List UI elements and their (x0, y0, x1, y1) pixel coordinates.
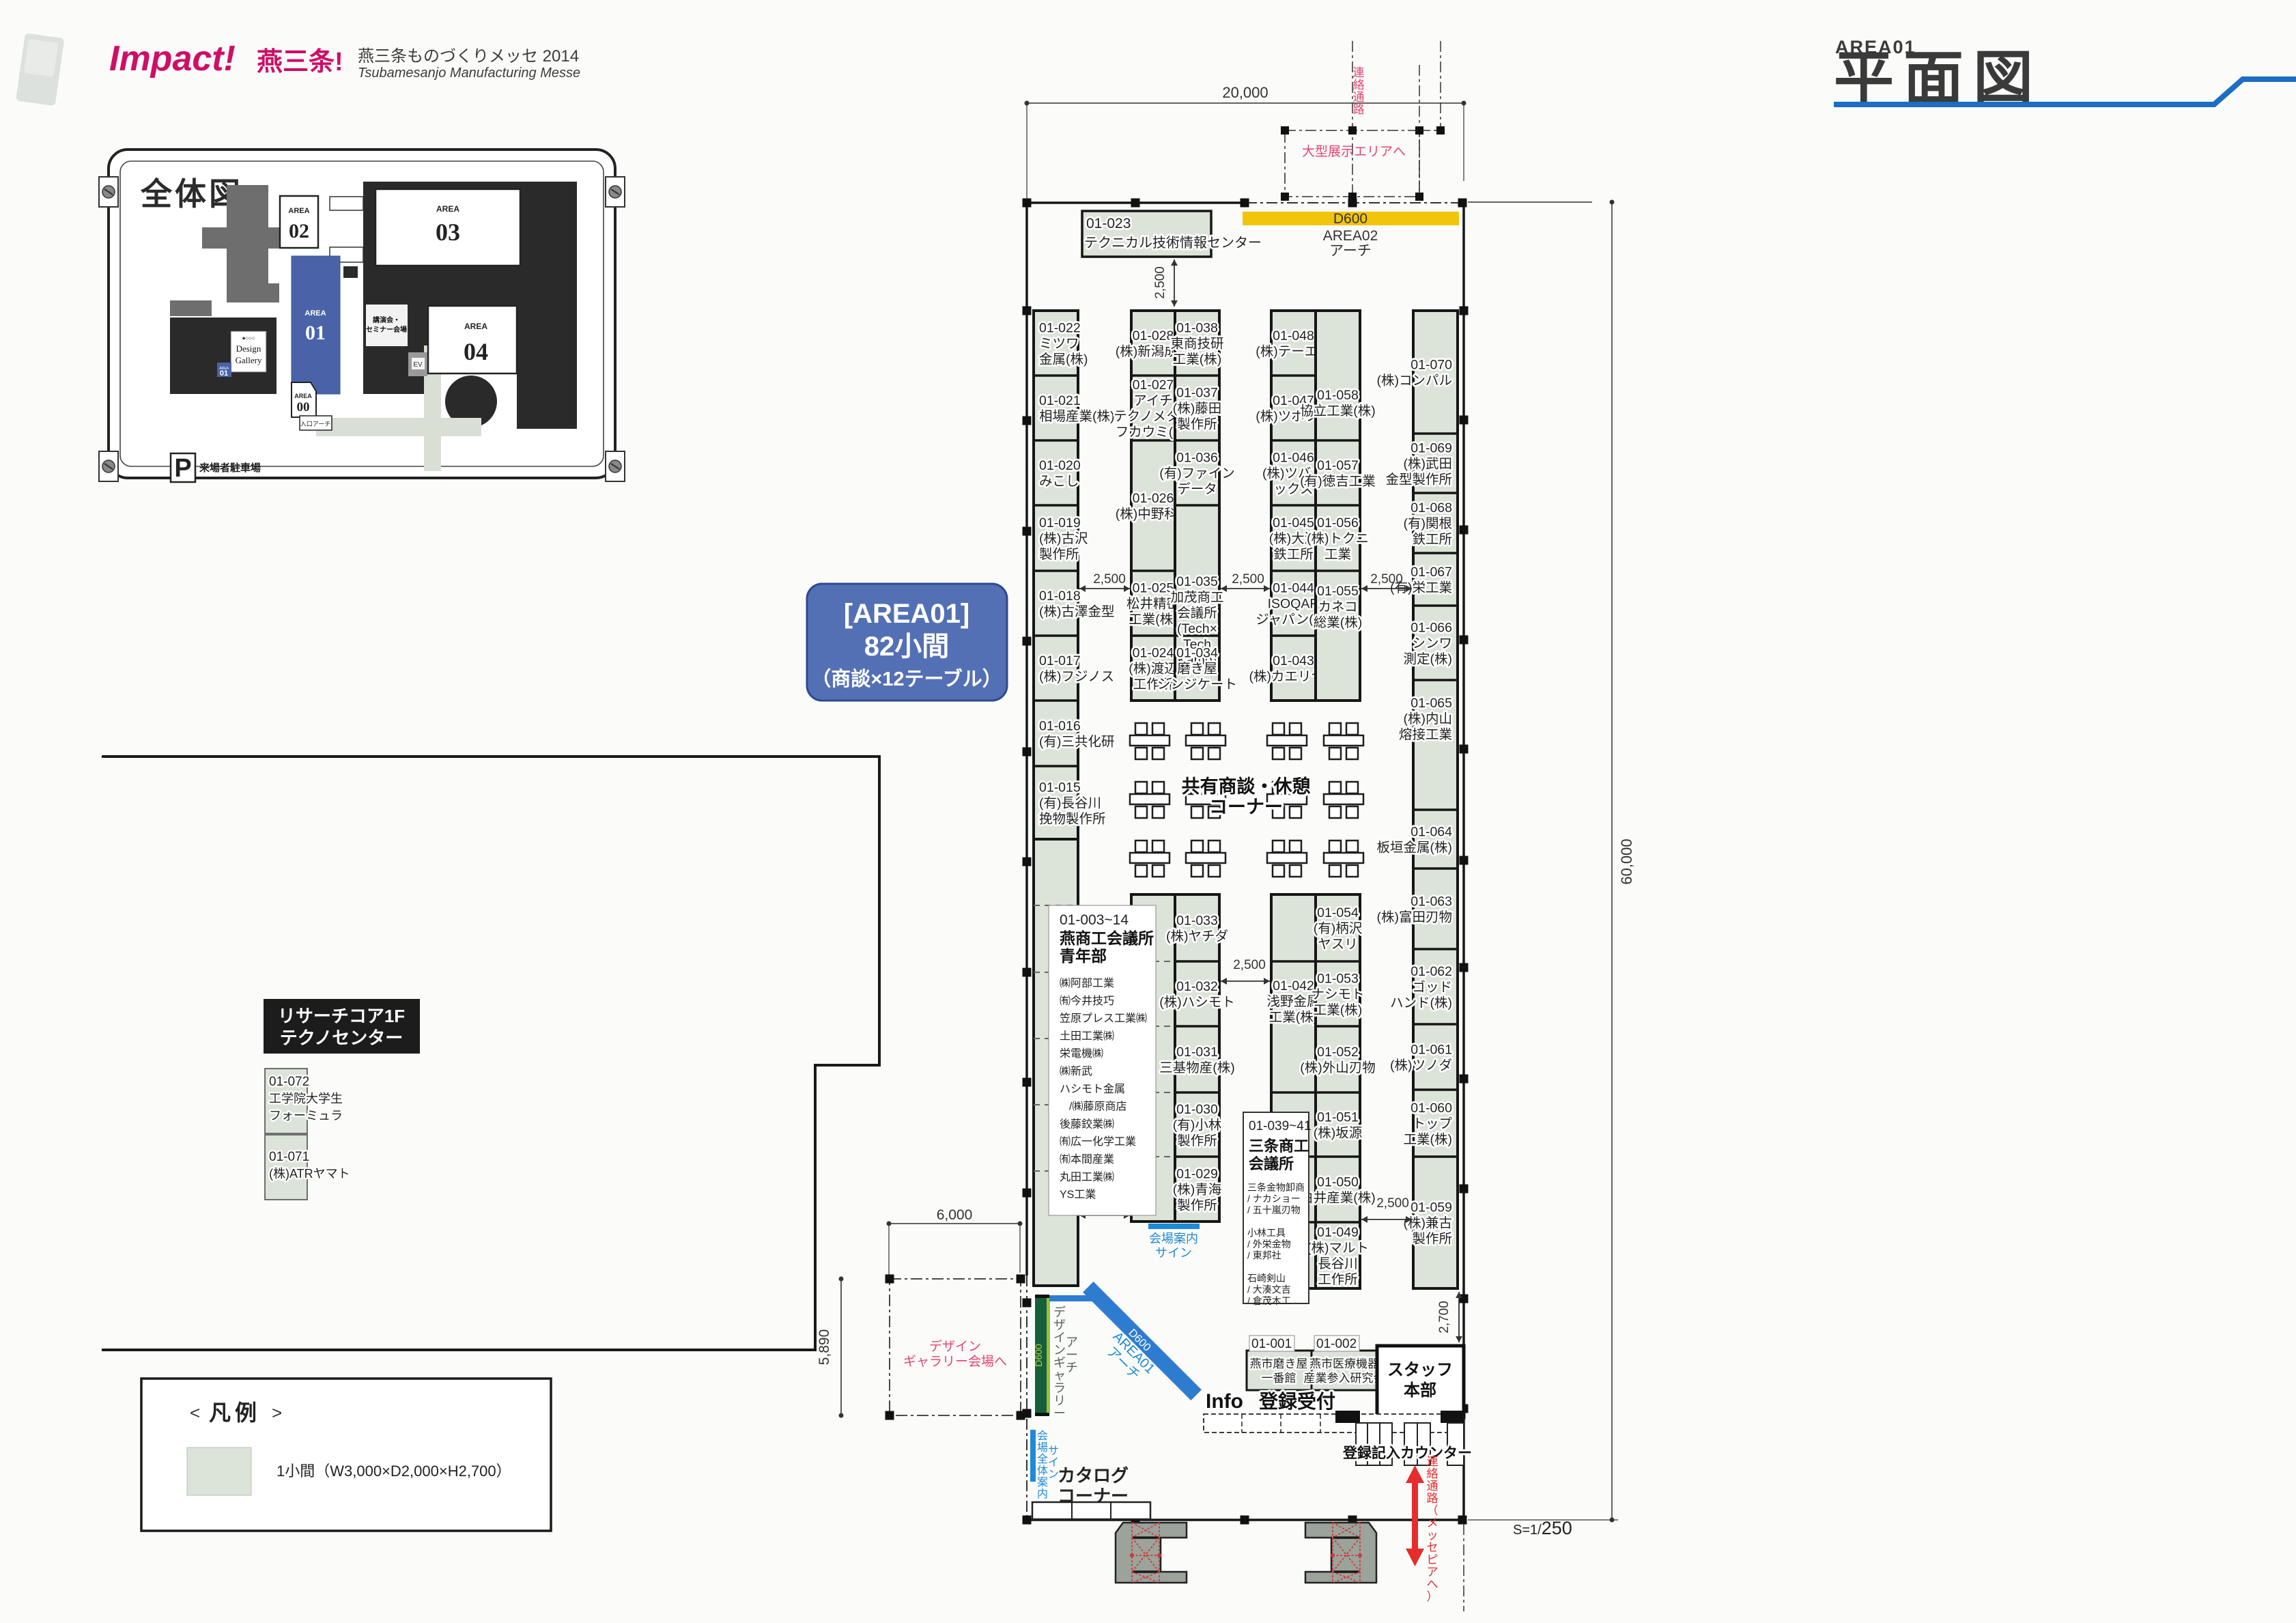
svg-text:㈱阿部工業: ㈱阿部工業 (1060, 977, 1114, 989)
svg-text:ヤスリ: ヤスリ (1318, 937, 1358, 952)
svg-text:ハシモト金属: ハシモト金属 (1060, 1083, 1125, 1095)
svg-text:04: 04 (464, 338, 488, 365)
svg-text:工業(株): 工業(株) (1404, 1132, 1453, 1147)
svg-text:01-044: 01-044 (1273, 581, 1314, 596)
svg-text:(株)ATRヤマト: (株)ATRヤマト (269, 1167, 350, 1181)
svg-text:後藤鉸業㈱: 後藤鉸業㈱ (1060, 1118, 1114, 1130)
svg-text:工学院大学生: 工学院大学生 (269, 1092, 343, 1105)
svg-text:(株)青海: (株)青海 (1173, 1183, 1222, 1198)
svg-text:フォーミュラ: フォーミュラ (269, 1109, 343, 1123)
svg-text:01-069: 01-069 (1411, 441, 1452, 456)
svg-text:㈲今井技巧: ㈲今井技巧 (1060, 995, 1114, 1007)
svg-text:01-034: 01-034 (1176, 646, 1218, 661)
svg-text:01-025: 01-025 (1133, 581, 1174, 596)
svg-text:01-024: 01-024 (1133, 646, 1174, 661)
svg-text:工業(株): 工業(株) (1269, 1010, 1318, 1025)
svg-text:01-045: 01-045 (1273, 516, 1314, 531)
svg-text:アイチ: アイチ (1133, 393, 1173, 408)
svg-text:/ ナカショー: / ナカショー (1247, 1194, 1301, 1204)
svg-text:2,500: 2,500 (1093, 572, 1126, 587)
svg-text:加茂商工: 加茂商工 (1170, 590, 1223, 605)
svg-text:白井産業(株): 白井産業(株) (1300, 1191, 1376, 1206)
svg-text:20,000: 20,000 (1222, 84, 1268, 101)
svg-text:2,500: 2,500 (1370, 572, 1403, 587)
svg-text:00: 00 (297, 400, 310, 414)
svg-text:01-056: 01-056 (1317, 516, 1359, 531)
svg-text:(株)古澤金型: (株)古澤金型 (1039, 604, 1115, 619)
svg-text:製作所: 製作所 (1177, 417, 1217, 432)
svg-text:01-053: 01-053 (1317, 972, 1359, 987)
svg-text:挽物製作所: 挽物製作所 (1039, 812, 1106, 827)
svg-text:総業(株): 総業(株) (1314, 615, 1363, 630)
svg-text:相場産業(株): 相場産業(株) (1039, 409, 1115, 424)
svg-text:01-020: 01-020 (1039, 458, 1081, 473)
svg-text:アーチ: アーチ (1066, 1336, 1078, 1374)
svg-text:石崎剣山: 石崎剣山 (1247, 1273, 1286, 1284)
svg-text:01-057: 01-057 (1317, 458, 1359, 473)
svg-text:スタッフ: スタッフ (1387, 1361, 1453, 1379)
svg-text:AREA: AREA (288, 207, 309, 215)
svg-text:サイン: サイン (1155, 1246, 1192, 1260)
svg-text:三条金物卸商: 三条金物卸商 (1247, 1182, 1305, 1193)
svg-text:01-049: 01-049 (1317, 1225, 1359, 1240)
svg-text:磨き屋: 磨き屋 (1177, 662, 1217, 677)
svg-text:(株)武田: (株)武田 (1404, 457, 1453, 472)
svg-text:燕市医療機器: 燕市医療機器 (1309, 1357, 1379, 1370)
svg-text:(有)小林: (有)小林 (1173, 1118, 1222, 1133)
svg-text:デザイン: デザイン (929, 1339, 981, 1354)
svg-text:共有商談・休憩: 共有商談・休憩 (1182, 776, 1311, 797)
svg-text:(Tech×: (Tech× (1177, 621, 1217, 636)
svg-text:AREA: AREA (464, 322, 487, 331)
svg-text:D600: D600 (1033, 1344, 1044, 1367)
svg-text:(株)ハシモト: (株)ハシモト (1159, 995, 1235, 1010)
svg-text:1小間（W3,000×D2,000×H2,700）: 1小間（W3,000×D2,000×H2,700） (277, 1463, 511, 1480)
svg-text:(株)藤田: (株)藤田 (1173, 401, 1222, 417)
svg-text:登録記入カウンター: 登録記入カウンター (1342, 1445, 1472, 1461)
svg-text:燕三条!: 燕三条! (257, 48, 343, 76)
svg-text:講演会・: 講演会・ (373, 315, 400, 324)
svg-text:60,000: 60,000 (1618, 838, 1635, 884)
svg-text:本部: 本部 (1404, 1381, 1436, 1400)
svg-text:(株)コンパル: (株)コンパル (1377, 373, 1453, 389)
svg-text:鉄工所: 鉄工所 (1273, 547, 1314, 562)
svg-text:01-052: 01-052 (1317, 1045, 1359, 1060)
svg-text:01-032: 01-032 (1176, 979, 1218, 994)
svg-text:01-031: 01-031 (1176, 1045, 1218, 1060)
svg-text:01-016: 01-016 (1039, 719, 1081, 734)
svg-text:ギャラリー会場へ: ギャラリー会場へ (903, 1354, 1007, 1369)
svg-text:/ 東邦社: / 東邦社 (1247, 1250, 1281, 1261)
svg-text:Tsubamesanjo Manufacturing Mes: Tsubamesanjo Manufacturing Messe (358, 66, 580, 81)
svg-text:(株)坂源: (株)坂源 (1314, 1126, 1363, 1141)
svg-text:丸田工業㈱: 丸田工業㈱ (1060, 1171, 1114, 1183)
svg-text:82小間: 82小間 (864, 632, 950, 662)
svg-text:ハンド(株): ハンド(株) (1390, 996, 1452, 1011)
svg-text:01-038: 01-038 (1176, 321, 1218, 336)
svg-text:鉄工所: 鉄工所 (1412, 532, 1452, 547)
svg-text:01-030: 01-030 (1176, 1102, 1218, 1117)
svg-text:01-068: 01-068 (1411, 500, 1452, 516)
svg-text:01-059: 01-059 (1411, 1200, 1452, 1215)
svg-text:入口アーチ: 入口アーチ (300, 421, 330, 427)
svg-text:◆◇◇◇: ◆◇◇◇ (242, 337, 255, 341)
svg-text:01-063: 01-063 (1411, 894, 1452, 909)
svg-text:Impact!: Impact! (109, 39, 236, 79)
svg-text:ナシモト: ナシモト (1311, 987, 1364, 1002)
svg-text:01-051: 01-051 (1317, 1110, 1359, 1125)
svg-text:㈲本間産業: ㈲本間産業 (1060, 1153, 1114, 1166)
svg-text:(株)渡辺: (株)渡辺 (1129, 662, 1178, 677)
svg-text:テクノセンター: テクノセンター (280, 1028, 403, 1048)
svg-text:会場全体案内: 会場全体案内 (1037, 1430, 1048, 1500)
svg-text:01-042: 01-042 (1273, 978, 1314, 993)
svg-text:燕三条ものづくりメッセ 2014: 燕三条ものづくりメッセ 2014 (358, 47, 579, 66)
svg-text:01-072: 01-072 (269, 1075, 309, 1089)
svg-text:AREA02: AREA02 (1323, 228, 1378, 244)
svg-text:01-026: 01-026 (1133, 491, 1174, 506)
svg-text:熔接工業: 熔接工業 (1399, 727, 1452, 742)
svg-text:01-028: 01-028 (1133, 328, 1174, 343)
svg-text:(有)長谷川: (有)長谷川 (1039, 796, 1101, 811)
svg-text:金属(株): 金属(株) (1039, 352, 1088, 367)
svg-text:登録受付: 登録受付 (1258, 1390, 1335, 1412)
svg-text:凡例: 凡例 (209, 1400, 261, 1425)
svg-text:Gallery: Gallery (236, 355, 262, 365)
svg-text:小林工具: 小林工具 (1247, 1227, 1286, 1238)
svg-text:01-017: 01-017 (1039, 653, 1081, 668)
svg-text:燕商工会議所: 燕商工会議所 (1060, 929, 1154, 947)
svg-text:金型製作所: 金型製作所 (1385, 472, 1452, 488)
svg-text:コーナー: コーナー (1209, 797, 1283, 817)
svg-text:(株)マルト: (株)マルト (1307, 1241, 1369, 1256)
svg-text:製作所: 製作所 (1039, 547, 1079, 562)
svg-text:カネコ: カネコ (1318, 599, 1357, 615)
svg-text:リサーチコア1F: リサーチコア1F (278, 1006, 405, 1026)
svg-text:(株)ヤチダ: (株)ヤチダ (1166, 929, 1228, 944)
svg-text:D600: D600 (1333, 211, 1367, 227)
svg-text:01-064: 01-064 (1411, 825, 1452, 840)
svg-text:01-046: 01-046 (1273, 451, 1314, 466)
svg-text:03: 03 (436, 218, 460, 246)
svg-text:01: 01 (305, 322, 326, 344)
svg-text:01-066: 01-066 (1411, 621, 1452, 636)
svg-text:セミナー会場: セミナー会場 (366, 325, 407, 334)
svg-text:(株)富田刃物: (株)富田刃物 (1377, 910, 1453, 925)
svg-text:01-003~14: 01-003~14 (1060, 912, 1129, 928)
svg-text:01-019: 01-019 (1039, 516, 1081, 531)
svg-text:トップ: トップ (1412, 1116, 1452, 1131)
svg-text:01-065: 01-065 (1411, 696, 1452, 711)
svg-text:工業(株): 工業(株) (1173, 352, 1222, 367)
svg-text:01-002: 01-002 (1316, 1337, 1357, 1351)
svg-text:01-023: 01-023 (1086, 216, 1131, 231)
svg-text:01-070: 01-070 (1411, 358, 1452, 373)
svg-text:[AREA01]: [AREA01] (844, 599, 969, 629)
svg-text:(株)トクニ: (株)トクニ (1307, 531, 1369, 546)
svg-text:工作所: 工作所 (1318, 1272, 1358, 1287)
svg-text:工業(株): 工業(株) (1129, 612, 1178, 627)
svg-text:01-001: 01-001 (1251, 1337, 1292, 1351)
svg-text:㈱新武: ㈱新武 (1060, 1065, 1092, 1077)
svg-text:Info: Info (1206, 1390, 1243, 1413)
svg-text:01-018: 01-018 (1039, 589, 1081, 604)
svg-text:連絡通路（メッセピアへ）: 連絡通路（メッセピアへ） (1427, 1455, 1438, 1603)
svg-text:01-029: 01-029 (1176, 1167, 1218, 1182)
svg-text:(有)三共化研: (有)三共化研 (1039, 735, 1115, 750)
svg-text:栄電機㈱: 栄電機㈱ (1060, 1047, 1103, 1060)
svg-text:みこし: みこし (1039, 474, 1079, 489)
svg-text:/ 外栄金物: / 外栄金物 (1247, 1239, 1291, 1250)
svg-text:アーチ: アーチ (1329, 243, 1372, 259)
svg-text:6,000: 6,000 (937, 1207, 973, 1223)
svg-text:01-054: 01-054 (1317, 905, 1359, 920)
svg-text:01-060: 01-060 (1411, 1101, 1452, 1116)
svg-text:01-061: 01-061 (1411, 1043, 1452, 1058)
svg-text:01-027: 01-027 (1133, 378, 1174, 393)
svg-text:ISOQAR: ISOQAR (1268, 597, 1320, 612)
svg-text:2,500: 2,500 (1232, 572, 1264, 587)
svg-text:<: < (190, 1402, 200, 1423)
svg-text:板垣金属(株): 板垣金属(株) (1377, 841, 1453, 856)
svg-text:/ 大湊文吉: / 大湊文吉 (1247, 1284, 1291, 1295)
svg-text:01-043: 01-043 (1273, 653, 1314, 668)
svg-text:01-022: 01-022 (1039, 321, 1081, 336)
svg-text:AREA: AREA (294, 393, 312, 399)
svg-text:デザインギャラリー: デザインギャラリー (1053, 1306, 1066, 1420)
svg-text:01-021: 01-021 (1039, 393, 1081, 408)
svg-text:(株)フジノス: (株)フジノス (1039, 669, 1114, 684)
svg-text:長谷川: 長谷川 (1318, 1256, 1358, 1271)
svg-text:工業(株): 工業(株) (1314, 1003, 1363, 1018)
svg-text:シンワ: シンワ (1412, 636, 1452, 651)
svg-text:製作所: 製作所 (1177, 1133, 1217, 1148)
svg-text:01-048: 01-048 (1273, 328, 1314, 343)
svg-text:2,500: 2,500 (1153, 266, 1167, 299)
svg-text:シンジケート: シンジケート (1157, 677, 1237, 692)
svg-text:02: 02 (289, 220, 309, 242)
svg-text:三条商工: 三条商工 (1249, 1138, 1309, 1155)
svg-text:01-015: 01-015 (1039, 780, 1081, 795)
svg-text:YS工業: YS工業 (1060, 1189, 1096, 1201)
svg-text:>: > (272, 1402, 282, 1423)
svg-text:01-035: 01-035 (1176, 574, 1218, 589)
svg-text:製作所: 製作所 (1412, 1232, 1452, 1247)
svg-text:カタログ: カタログ (1058, 1465, 1129, 1486)
svg-text:テクニカル技術情報センター: テクニカル技術情報センター (1084, 235, 1262, 251)
svg-text:会場案内: 会場案内 (1149, 1232, 1198, 1245)
svg-text:2,500: 2,500 (1233, 958, 1266, 972)
svg-text:(有)ファイン: (有)ファイン (1159, 466, 1235, 481)
svg-text:ゴッド: ゴッド (1412, 980, 1452, 995)
svg-text:AREA: AREA (304, 309, 326, 317)
svg-text:Design: Design (236, 343, 261, 354)
svg-text:5,890: 5,890 (817, 1329, 832, 1366)
svg-text:(有)徳吉工業: (有)徳吉工業 (1300, 474, 1376, 489)
svg-text:土田工業㈱: 土田工業㈱ (1060, 1030, 1114, 1042)
svg-text:工業: 工業 (1324, 547, 1351, 562)
svg-text:(株)外山刃物: (株)外山刃物 (1300, 1060, 1376, 1075)
svg-text:測定(株): 測定(株) (1404, 652, 1453, 667)
svg-text:三基物産(株): 三基物産(株) (1159, 1060, 1235, 1075)
svg-text:01-033: 01-033 (1176, 914, 1218, 929)
svg-text:ミツワ: ミツワ (1039, 337, 1079, 352)
svg-text:笠原プレス工業㈱: 笠原プレス工業㈱ (1060, 1013, 1147, 1025)
svg-text:来場者駐車場: 来場者駐車場 (199, 462, 261, 474)
svg-text:P: P (174, 454, 191, 483)
svg-text:01-036: 01-036 (1176, 451, 1218, 466)
svg-text:協立工業(株): 協立工業(株) (1300, 404, 1376, 419)
svg-text:2,500: 2,500 (1376, 1196, 1409, 1211)
svg-text:（商談×12テーブル）: （商談×12テーブル） (811, 667, 1002, 690)
svg-text:/ 倉茂木工: / 倉茂木工 (1247, 1295, 1291, 1306)
svg-text:(株)ツノダ: (株)ツノダ (1390, 1058, 1452, 1073)
svg-text:01-055: 01-055 (1317, 584, 1359, 599)
svg-text:EV: EV (413, 361, 423, 369)
svg-text:2,700: 2,700 (1437, 1301, 1451, 1333)
svg-text:製作所: 製作所 (1177, 1198, 1217, 1213)
svg-text:AREA: AREA (436, 204, 459, 214)
svg-text:連絡通路: 連絡通路 (1353, 66, 1365, 116)
svg-text:01-062: 01-062 (1411, 964, 1452, 979)
svg-text:燕市磨き屋: 燕市磨き屋 (1250, 1357, 1308, 1370)
svg-text:㈲広一化学工業: ㈲広一化学工業 (1060, 1135, 1136, 1148)
svg-text:青年部: 青年部 (1060, 947, 1107, 965)
svg-text:会議所: 会議所 (1249, 1155, 1294, 1172)
svg-text:01-067: 01-067 (1411, 565, 1452, 580)
svg-text:(有)柄沢: (有)柄沢 (1314, 921, 1363, 936)
svg-text:01-037: 01-037 (1176, 386, 1218, 401)
svg-text:/㈱藤原商店: /㈱藤原商店 (1069, 1101, 1126, 1113)
svg-text:01-071: 01-071 (269, 1150, 309, 1164)
svg-text:東商技研: 東商技研 (1170, 337, 1223, 352)
svg-text:(株)古沢: (株)古沢 (1039, 531, 1088, 546)
svg-text:会議所: 会議所 (1177, 606, 1217, 621)
svg-text:(株)内山: (株)内山 (1404, 711, 1453, 726)
svg-text:/ 五十嵐刃物: / 五十嵐刃物 (1247, 1204, 1301, 1215)
svg-text:01-050: 01-050 (1317, 1175, 1359, 1190)
svg-text:(有)関根: (有)関根 (1404, 516, 1453, 531)
svg-text:01-039~41: 01-039~41 (1249, 1119, 1311, 1133)
svg-text:一番館: 一番館 (1262, 1372, 1296, 1385)
svg-text:大型展示エリアへ: 大型展示エリアへ (1302, 144, 1406, 159)
svg-text:(株)兼古: (株)兼古 (1404, 1216, 1453, 1231)
svg-text:データ: データ (1177, 482, 1217, 497)
svg-text:01-058: 01-058 (1317, 388, 1359, 403)
svg-text:01: 01 (220, 369, 228, 378)
svg-text:産業参入研究会: 産業参入研究会 (1304, 1372, 1385, 1385)
